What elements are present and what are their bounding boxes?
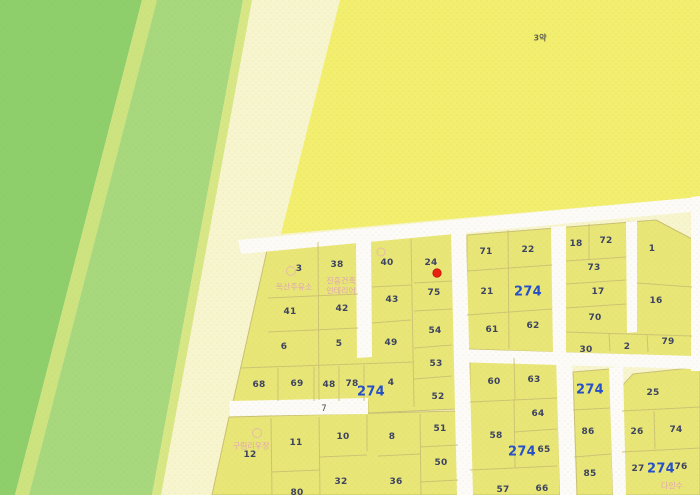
parcel-label-3: 3 — [296, 264, 302, 274]
parcel-label-43: 43 — [386, 295, 399, 305]
parcel-label-27: 27 — [632, 464, 645, 474]
parcel-label-74: 74 — [670, 425, 683, 435]
block-number-274-southeast: 274 — [647, 462, 675, 477]
parcel-label-22: 22 — [522, 245, 535, 255]
parcel-label-40: 40 — [381, 258, 394, 268]
parcel-label-60: 60 — [488, 377, 501, 387]
parcel-label-18: 18 — [570, 239, 583, 249]
parcel-label-72: 72 — [600, 236, 613, 246]
parcel-label-4: 4 — [388, 378, 394, 388]
parcel-label-85: 85 — [584, 469, 597, 479]
parcel-label-17: 17 — [592, 287, 605, 297]
parcel-label-57: 57 — [497, 485, 510, 495]
parcel-label-24: 24 — [425, 258, 438, 268]
parcel-label-54: 54 — [429, 326, 442, 336]
parcel-label-75: 75 — [428, 288, 441, 298]
parcel-label-26: 26 — [631, 427, 644, 437]
block-number-274-south: 274 — [508, 445, 536, 460]
parcel-label-6: 6 — [281, 342, 287, 352]
parcel-label-53: 53 — [430, 359, 443, 369]
block-number-274-center: 274 — [514, 285, 542, 300]
parcel-label-61: 61 — [486, 325, 499, 335]
parcel-label-1: 1 — [649, 244, 655, 254]
parcel-label-21: 21 — [481, 287, 494, 297]
parcel-label-79: 79 — [662, 337, 675, 347]
map-texture — [0, 0, 700, 495]
parcel-label-70: 70 — [589, 313, 602, 323]
parcel-label-36: 36 — [390, 477, 403, 487]
parcel-label-68: 68 — [253, 380, 266, 390]
parcel-label-42: 42 — [336, 304, 349, 314]
parcel-label-32: 32 — [335, 477, 348, 487]
parcel-label-80: 80 — [291, 488, 304, 495]
block-number-274-strip: 274 — [576, 383, 604, 398]
parcel-label-2: 2 — [624, 342, 630, 352]
poi-southeast-label: 다인수 — [661, 481, 683, 492]
parcel-label-58: 58 — [490, 431, 503, 441]
parcel-label-16: 16 — [650, 296, 663, 306]
parcel-label-11: 11 — [290, 438, 303, 448]
parcel-label-71: 71 — [480, 247, 493, 257]
parcel-label-73: 73 — [588, 263, 601, 273]
parcel-label-12: 12 — [244, 450, 257, 460]
poi-village-label: 구림리우정 — [233, 441, 270, 452]
parcel-label-30: 30 — [580, 345, 593, 355]
parcel-label-65: 65 — [538, 445, 551, 455]
parcel-label-66: 66 — [536, 484, 549, 494]
poi-interior-label-line2: 인테리어 — [326, 286, 355, 297]
parcel-label-48: 48 — [323, 380, 336, 390]
map-geometry — [0, 0, 700, 495]
parcel-label-10: 10 — [337, 432, 350, 442]
map-canvas[interactable]: 3약 7 3 38 41 42 6 5 68 69 48 78 40 24 43… — [0, 0, 700, 495]
parcel-label-69: 69 — [291, 379, 304, 389]
parcel-label-8: 8 — [389, 432, 395, 442]
parcel-label-5: 5 — [336, 339, 342, 349]
parcel-label-51: 51 — [434, 424, 447, 434]
red-marker-dot[interactable] — [433, 269, 441, 277]
parcel-label-63: 63 — [528, 375, 541, 385]
block-number-274-west: 274 — [357, 385, 385, 400]
parcel-label-38: 38 — [331, 260, 344, 270]
parcel-label-49: 49 — [385, 338, 398, 348]
parcel-label-76: 76 — [675, 462, 688, 472]
parcel-label-25: 25 — [647, 388, 660, 398]
parcel-label-41: 41 — [284, 307, 297, 317]
parcel-label-52: 52 — [432, 392, 445, 402]
parcel-label-50: 50 — [435, 458, 448, 468]
parcel-label-86: 86 — [582, 427, 595, 437]
poi-gas-station-label: 옥산주유소 — [276, 282, 313, 293]
parcel-label-64: 64 — [532, 409, 545, 419]
parcel-label-62: 62 — [527, 321, 540, 331]
field-label: 3약 — [534, 33, 547, 44]
road-label-7: 7 — [321, 404, 326, 414]
